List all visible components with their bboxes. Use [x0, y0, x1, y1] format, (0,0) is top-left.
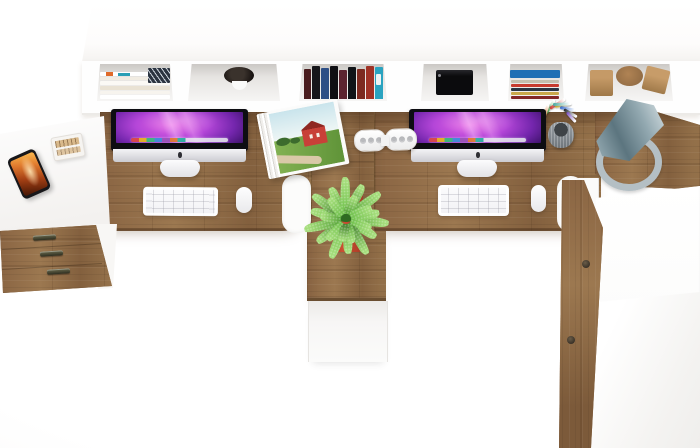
- pen: [553, 102, 571, 106]
- book-spine: [348, 67, 356, 99]
- potted-plant: [300, 180, 392, 262]
- stacked-book-spine: [511, 80, 559, 83]
- magazine-spine: [100, 86, 170, 90]
- pen-cup: [548, 122, 574, 148]
- left-monitor-stand: [160, 160, 200, 177]
- book-spine: [339, 70, 347, 99]
- wooden-disc: [616, 66, 643, 86]
- book-spine: [312, 66, 320, 99]
- cabinet-knob: [567, 336, 575, 344]
- hutch-top-surface: [82, 4, 700, 62]
- drawer-handle: [40, 250, 63, 257]
- scene: [0, 0, 700, 448]
- shelf-compartment-magazines: [97, 64, 173, 101]
- shelf-compartment-laptop: [421, 64, 489, 101]
- right-mouse: [531, 185, 546, 212]
- drawer-seam: [2, 243, 102, 250]
- power-socket: [407, 136, 413, 142]
- right-keyboard: [438, 185, 509, 216]
- center-pedestal-cabinet: [308, 301, 388, 362]
- right-monitor-wallpaper: [414, 112, 541, 143]
- shelf-compartment-book-stack: [508, 64, 564, 101]
- power-strip-segment: [385, 128, 418, 151]
- wooden-cube: [590, 70, 613, 96]
- stacked-book-spine: [511, 88, 559, 91]
- book-spine: [321, 68, 329, 99]
- pen-holder: [540, 100, 582, 152]
- right-monitor-stand: [457, 160, 497, 177]
- drawer-handle: [47, 268, 70, 275]
- stacked-book-spine: [511, 96, 559, 99]
- wooden-tilted-block: [641, 65, 670, 94]
- cabinet-knob: [582, 260, 590, 268]
- hutch-front: [82, 61, 700, 115]
- barn-window: [316, 133, 320, 137]
- shelf-compartment-wood-decor: [585, 64, 673, 101]
- cup-handle: [232, 81, 247, 90]
- book-spine: [375, 67, 383, 99]
- power-socket: [391, 137, 397, 143]
- book-label: [376, 74, 381, 85]
- magazine-accent-teal: [118, 73, 130, 76]
- book-spine: [304, 69, 312, 99]
- magazine-spine: [100, 91, 170, 95]
- apple-logo-icon: [178, 152, 182, 158]
- book-spine: [330, 66, 338, 99]
- power-strip-connector: [381, 135, 389, 146]
- left-monitor-dock: [131, 138, 228, 142]
- power-socket: [399, 136, 405, 142]
- drawer-unit: [0, 222, 115, 294]
- apple-logo-icon: [476, 152, 480, 158]
- power-socket: [360, 138, 366, 144]
- barn-window: [309, 134, 313, 138]
- shelf-books-row: [303, 66, 383, 99]
- drawer-handle: [33, 234, 56, 241]
- left-monitor: [111, 109, 248, 151]
- stacked-book-spine: [511, 84, 559, 87]
- right-monitor: [409, 109, 546, 151]
- blue-book-cover: [510, 70, 560, 78]
- left-keyboard: [143, 187, 218, 217]
- book-stack-spines: [511, 79, 559, 99]
- left-mouse: [236, 187, 252, 213]
- shelf-compartment-books: [299, 64, 387, 101]
- magazine-accent-orange: [106, 72, 113, 76]
- stacked-book-spine: [511, 92, 559, 95]
- shelf-compartment-cup: [188, 64, 280, 101]
- magazine-photo: [269, 102, 345, 174]
- outlet-row: [56, 146, 81, 156]
- closed-laptop: [436, 70, 473, 95]
- book-spine: [357, 69, 365, 99]
- power-socket: [368, 137, 374, 143]
- power-strip: [354, 126, 417, 154]
- striped-magazine-end: [148, 68, 170, 83]
- photo-road: [272, 155, 322, 164]
- laptop-logo-dot: [438, 74, 441, 77]
- magazine-spine: [100, 95, 170, 99]
- left-monitor-wallpaper: [116, 112, 243, 143]
- book-spine: [366, 66, 374, 99]
- right-monitor-dock: [429, 138, 526, 142]
